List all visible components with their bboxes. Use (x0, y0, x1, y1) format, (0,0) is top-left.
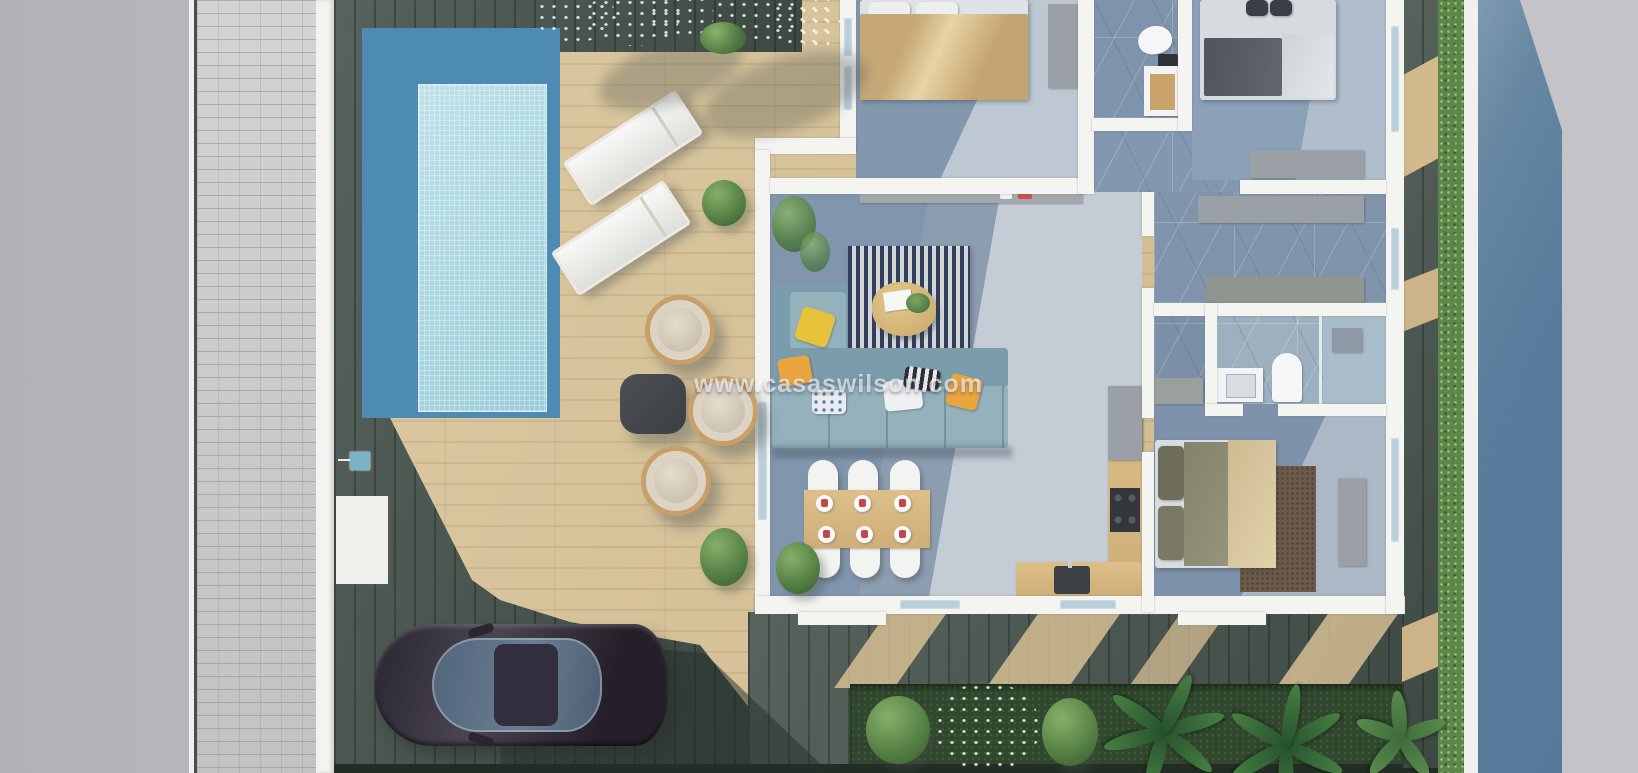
shower-mat (1332, 328, 1362, 352)
tree-canopy (700, 22, 746, 54)
right-strip-light-1 (1402, 56, 1438, 178)
vanity-1-basin (1150, 74, 1175, 110)
bed1-blanket (860, 14, 1028, 100)
pool-equipment (350, 452, 370, 470)
dressing-closet-1 (1198, 196, 1364, 223)
street-left (0, 0, 190, 773)
wall-mid-a (1142, 192, 1154, 236)
garden-flower-tree (934, 682, 1040, 772)
wall-ensuite-left (1205, 303, 1217, 404)
door-glass-bottom-1 (900, 600, 960, 609)
bed1-wardrobe (1048, 4, 1078, 88)
street-right-gray (1562, 0, 1638, 773)
indoor-plant-2 (800, 232, 830, 272)
kitchen-fridge (1108, 386, 1142, 460)
window-right-1 (1391, 26, 1399, 132)
bed3-pillow (1158, 446, 1184, 500)
deck-bush-3 (702, 180, 746, 226)
window-right-3 (1391, 438, 1399, 542)
wall-ensuite-bottom-b (1278, 404, 1386, 416)
shower-glass (1319, 306, 1322, 404)
car (374, 624, 668, 746)
wicker-chair-3 (641, 446, 711, 516)
bed2-blanket-dark (1204, 38, 1282, 96)
sofa-shadow (772, 446, 1012, 458)
bed2-pillow (1246, 0, 1268, 16)
dressing-closet-2 (1206, 277, 1364, 303)
window-upper-left-1 (844, 18, 852, 56)
place-setting (856, 526, 873, 543)
place-setting (818, 526, 835, 543)
bed2-pillow (1270, 0, 1292, 16)
place-setting (894, 495, 911, 512)
wall-ensuite-bottom-a (1205, 404, 1243, 416)
place-setting (816, 495, 833, 512)
right-fence (1464, 0, 1478, 773)
bed3-pillow (1158, 506, 1184, 560)
kitchen-faucet (1068, 560, 1072, 568)
pool-water (418, 84, 547, 412)
wall-ensuite-top (1154, 303, 1386, 316)
deck-bush-1 (700, 528, 748, 586)
sidewalk-cobblestone (197, 0, 316, 773)
kitchen-sink (1054, 566, 1090, 594)
door-glass-bottom-2 (1060, 600, 1116, 609)
bed3-blanket-beige (1228, 440, 1276, 568)
door-threshold-2 (1178, 612, 1266, 625)
toilet-2 (1272, 353, 1302, 402)
place-setting (894, 526, 911, 543)
wall-bathroom1-right (1178, 0, 1192, 131)
window-right-2 (1391, 228, 1399, 290)
deck-bush-2 (776, 542, 820, 594)
wall-bedroom1-right (1078, 0, 1094, 194)
bed2-wardrobe (1250, 150, 1364, 178)
wall-mid-c (1142, 452, 1154, 612)
bed3-bench (1338, 478, 1366, 566)
wall-bathroom1-bottom (1092, 118, 1180, 131)
bed3-blanket-olive (1184, 442, 1230, 566)
bed2-throw-white (1282, 34, 1334, 98)
hedge (1438, 0, 1464, 773)
bed3-closet-nook (1154, 378, 1203, 404)
garden-bush-2 (1042, 698, 1098, 766)
equipment-pipe (338, 459, 350, 461)
storage-box (336, 496, 388, 584)
wall-living-top (770, 178, 1086, 194)
side-table (620, 374, 686, 434)
coffee-table-plant (906, 293, 930, 313)
door-threshold-1 (798, 612, 886, 625)
wall-bedroom2-bottom (1240, 180, 1386, 194)
vanity-2-basin (1226, 374, 1256, 398)
kitchen-cooktop (1110, 488, 1140, 532)
street-right (1478, 0, 1562, 773)
wicker-chair-1 (645, 295, 715, 365)
wall-step (755, 138, 856, 154)
watermark: www.casaswilson.com (694, 370, 983, 399)
window-left (758, 402, 767, 520)
plot-boundary-wall (316, 0, 334, 773)
wall-mid-b (1142, 288, 1154, 418)
garden-bush-round (866, 696, 930, 764)
car-roof (494, 644, 558, 726)
place-setting (854, 495, 871, 512)
floorplan-render: www.casaswilson.com (0, 0, 1638, 773)
